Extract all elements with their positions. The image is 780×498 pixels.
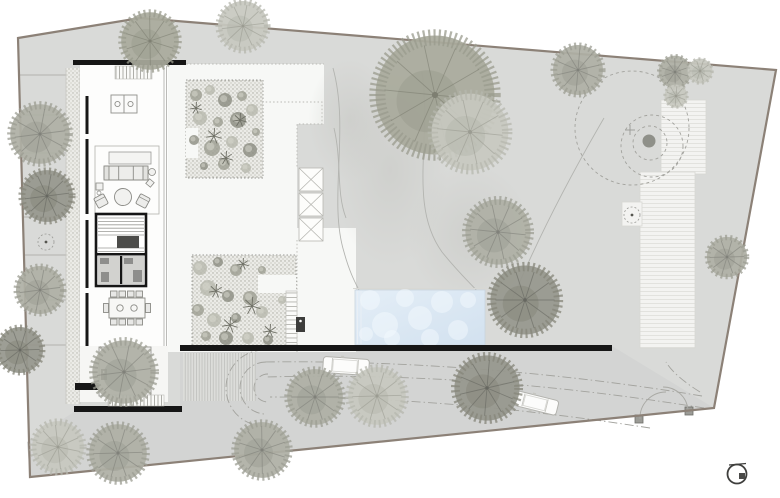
trunk [38,132,41,135]
entry-console [111,95,137,113]
water-bubble [396,289,414,307]
north-symbol [728,464,747,484]
sofa [104,166,148,180]
water-bubble [421,329,439,347]
trunk [674,71,676,73]
trunk [726,256,728,258]
shrub-highlight [265,337,270,342]
shrub-highlight [224,292,230,298]
side-table-round [149,169,156,176]
tree [490,265,559,334]
tree [121,12,179,70]
shrub-highlight [202,282,210,290]
dining-chair [128,319,135,325]
planter-dot [45,241,48,244]
trunk [122,370,125,373]
tree [218,1,268,51]
trunk [485,386,488,389]
planter-dot [631,214,634,217]
gate-dot [299,320,302,323]
water-bubble [360,290,380,310]
shrub-highlight [220,95,227,102]
shrub-highlight [245,293,252,300]
shrub-highlight [195,113,202,120]
shrub-highlight [203,333,208,338]
water-bubble [359,327,373,341]
trunk [675,95,677,97]
tree [10,104,70,164]
bath-fixture [124,258,133,264]
shrub-highlight [232,266,238,272]
water-bubble [460,292,476,308]
north-tick [729,464,746,466]
trunk [523,298,527,302]
trunk [261,449,264,452]
tree [32,421,84,473]
dining-chair [136,319,143,325]
dining-chair [136,291,143,297]
dining-chair [104,304,109,313]
shrub-highlight [228,138,234,144]
water-bubble [408,306,432,330]
dining-chair [128,291,135,297]
trunk [149,40,152,43]
shrub-highlight [192,91,198,97]
dining-chair [146,304,151,313]
stair-landing [117,236,139,248]
bath-fixture [100,258,109,264]
shrub-highlight [243,165,248,170]
shrub-highlight [259,267,263,271]
shrub-highlight [206,142,214,150]
north-dot [739,473,745,479]
shrub-highlight [239,93,244,98]
skylight-square [299,193,323,216]
dining-chair [119,319,126,325]
tree [287,369,343,425]
trunk [577,69,580,72]
side-table [96,183,103,190]
media-console [109,152,151,164]
site-plan-drawing: Residential architectural site plan — to… [0,0,780,498]
tree-trunk-dot [643,135,656,148]
shrub-highlight [258,308,264,314]
tree [664,84,687,107]
shrub-highlight [233,315,238,320]
dining-table [109,298,145,318]
trunk [57,446,60,449]
garden-steps [286,291,297,345]
branch [0,350,20,351]
shrub-highlight [248,106,254,112]
trunk [242,25,245,28]
dining-chair [111,291,118,297]
tree [16,266,64,314]
tree [465,199,530,264]
site-plan-canvas: Residential architectural site plan — to… [0,0,780,498]
trunk [46,195,49,198]
trunk [699,70,701,72]
trunk [39,289,42,292]
shrub-highlight [215,259,220,264]
trunk [19,349,21,351]
dining-chair [119,291,126,297]
trunk [314,396,317,399]
shrub-highlight [279,297,283,301]
shrub-highlight [209,315,216,322]
tree [92,340,155,403]
trunk [376,395,379,398]
shrub-highlight [194,306,200,312]
tree [348,367,406,425]
water-bubble [431,291,453,313]
shrub-highlight [221,333,228,340]
car-mirror [340,374,343,376]
swimming-pool [353,289,487,348]
skylight-square [299,168,323,191]
tree [688,59,713,84]
shrub-highlight [191,137,196,142]
branch [20,349,40,350]
tree [553,45,603,95]
trunk [432,92,438,98]
stair-core [96,214,146,286]
parking-pad [183,353,256,401]
car-mirror [341,356,344,358]
tree [234,422,290,478]
tree [432,94,509,171]
shrub-highlight [201,163,205,167]
garden-wall [180,345,612,351]
tree [21,170,73,222]
bath-fixture [133,270,142,282]
skylight-squares [299,168,323,241]
water-bubble [384,330,400,346]
shrub-highlight [207,87,212,92]
shrub-highlight [244,334,250,340]
tree [454,355,519,420]
shrub-highlight [253,129,257,133]
trunk [468,130,472,134]
shrub-highlight [245,145,252,152]
bath-fixture [101,272,109,282]
skylight-square [299,218,323,241]
trunk [496,230,499,233]
dining-chair [111,319,118,325]
bathrooms [98,256,144,284]
shrub-highlight [195,263,202,270]
tree [707,237,747,277]
garden-gate-marker [296,317,305,332]
trunk [117,452,120,455]
shrub-highlight [215,119,220,124]
coffee-table [115,189,132,206]
tree [89,424,147,482]
water-bubble [448,320,468,340]
